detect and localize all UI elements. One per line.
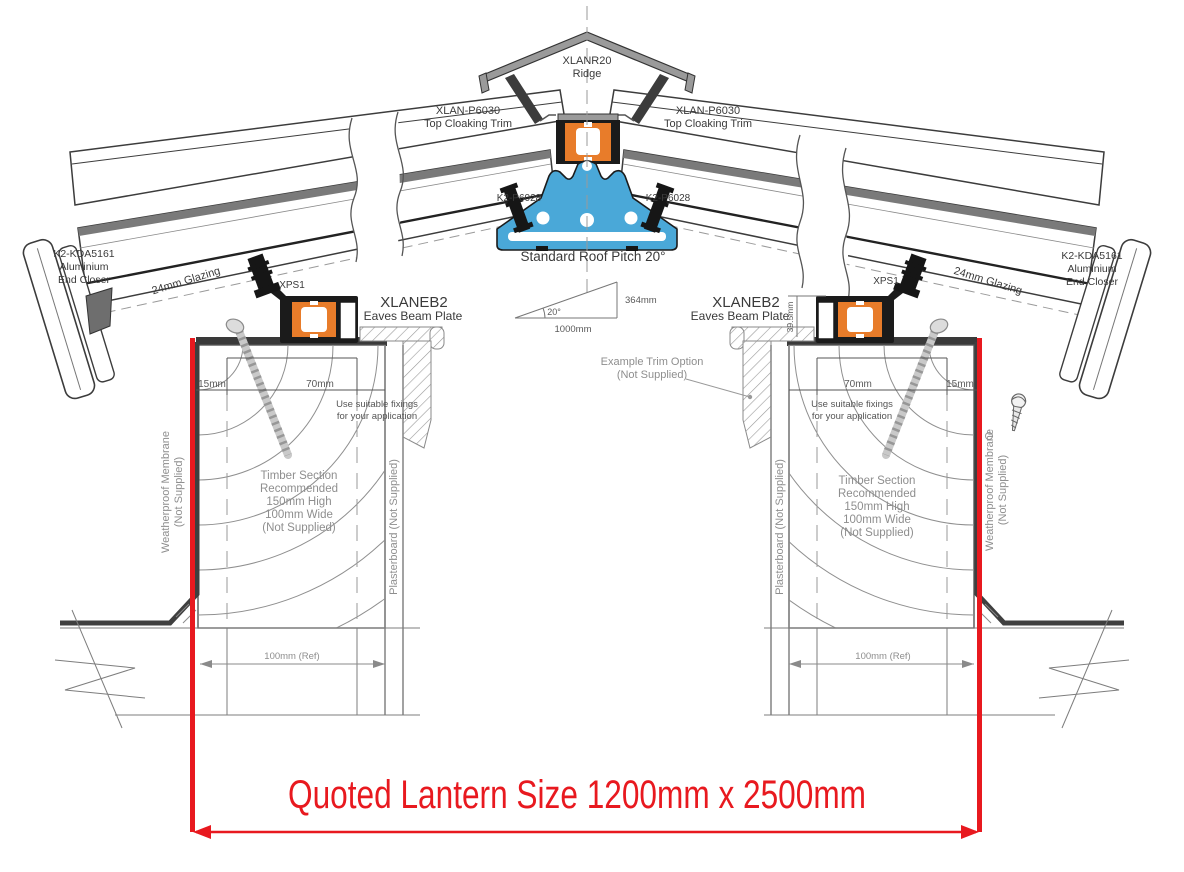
quoted-size-text: Quoted Lantern Size 1200mm x 2500mm [288,773,866,817]
end-closer-code-left: K2-KDA5161 [53,248,114,260]
eaves-beam-name-right: Eaves Beam Plate [691,309,790,323]
cloaking-name-left: Top Cloaking Trim [424,118,512,130]
timber-note-left: Timber Section Recommended 150mm High 10… [260,470,338,534]
membrane-note-line1-right: Weatherproof Membrane [984,429,996,551]
membrane-note-line1-left: Weatherproof Membrane [160,431,172,553]
dim-70-left: 70mm [306,379,334,390]
pitch-triangle [515,282,617,318]
pitch-rise: 364mm [625,295,657,306]
fixing-note-line2-left: for your application [337,411,417,422]
pitch-angle: 20° [547,307,561,317]
timber-note-line: 100mm Wide [265,509,333,521]
dim-70-right: 70mm [844,379,872,390]
trim-option-line2: (Not Supplied) [617,369,687,381]
timber-note-line: Recommended [838,488,916,500]
ridge-name-label: Ridge [573,68,602,80]
dim-15-right: 15mm [946,379,974,390]
cloaking-code-left: XLAN-P6030 [436,105,500,117]
diagram-canvas: XLANR20 Ridge XLAN-P6030 Top Cloaking Tr… [0,0,1184,872]
pitch-run: 1000mm [555,324,592,335]
dim-39: 39.5mm [785,302,795,333]
screw-icon [1007,393,1027,432]
end-closer-code-right: K2-KDA5161 [1061,250,1122,262]
timber-note-line: (Not Supplied) [840,527,914,539]
ridge-code-label: XLANR20 [563,55,612,67]
ceiling-lines [60,628,1124,715]
end-closer-line2-left: Aluminium [59,261,108,273]
timber-note-line: 150mm High [844,501,909,513]
end-closer-line2-right: Aluminium [1067,263,1116,275]
cloaking-code-right: XLAN-P6030 [676,105,740,117]
trim-option-leader [686,379,752,399]
cloaking-name-right: Top Cloaking Trim [664,118,752,130]
membrane-note-line2-left: (Not Supplied) [173,457,185,527]
membrane-note-line2-right: (Not Supplied) [997,455,1009,525]
xps-label-left: XPS1 [279,280,305,291]
trim-block-right [743,341,771,448]
timber-note-line: (Not Supplied) [262,522,336,534]
plasterboard-note-left: Plasterboard (Not Supplied) [388,459,400,595]
break-symbol-right [797,135,850,300]
fixing-note-line1-right: Use suitable fixings [811,399,893,410]
ref-100-right: 100mm (Ref) [855,651,910,662]
dim-15-left: 15mm [198,379,226,390]
rafter-bracket-right: K2-P6028 [646,193,691,204]
fixing-note-line2-right: for your application [812,411,892,422]
end-closer-gasket-left [86,288,112,334]
timber-note-line: 100mm Wide [843,514,911,526]
pitch-caption: Standard Roof Pitch 20° [521,249,666,264]
timber-note-line: 150mm High [266,496,331,508]
timber-note-line: Recommended [260,483,338,495]
ref-100-left: 100mm (Ref) [264,651,319,662]
plasterboard-note-right: Plasterboard (Not Supplied) [774,459,786,595]
trim-option-line1: Example Trim Option [601,356,704,368]
rafter-bracket-left: K2-P6028 [497,193,542,204]
ridge-profile [556,114,620,164]
eaves-beam-name-left: Eaves Beam Plate [364,309,463,323]
timber-note-line: Timber Section [839,475,916,487]
end-closer-line3-right: End Closer [1066,276,1118,288]
timber-note-line: Timber Section [261,470,338,482]
lantern-section-diagram: XLANR20 Ridge XLAN-P6030 Top Cloaking Tr… [0,0,1184,872]
end-closer-line3-left: End Closer [58,274,110,286]
fixing-note-line1-left: Use suitable fixings [336,399,418,410]
trim-block-left [403,341,431,448]
xps-label-right: XPS1 [873,276,899,287]
timber-note-right: Timber Section Recommended 150mm High 10… [838,475,916,539]
